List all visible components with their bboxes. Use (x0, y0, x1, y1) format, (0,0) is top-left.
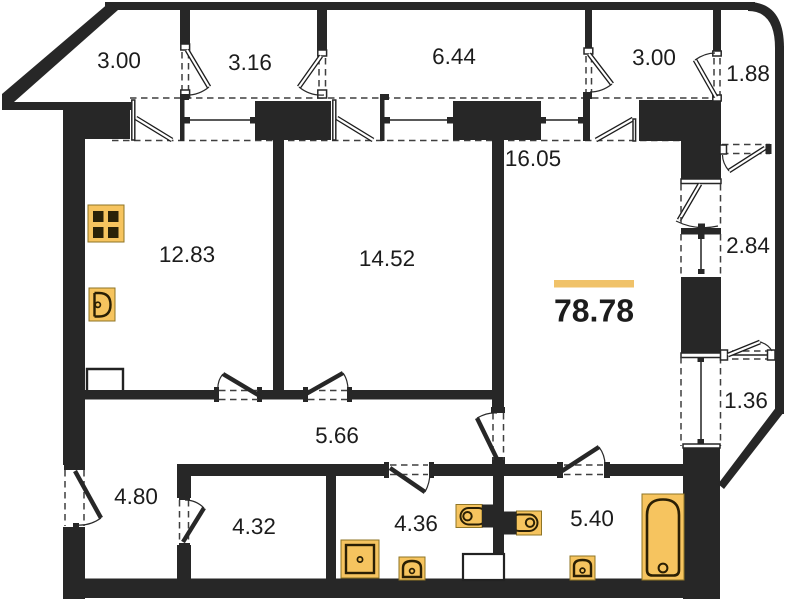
svg-text:1.88: 1.88 (726, 61, 770, 86)
svg-text:1.36: 1.36 (724, 388, 768, 413)
svg-text:4.80: 4.80 (114, 484, 158, 509)
svg-text:78.78: 78.78 (554, 293, 634, 329)
svg-text:3.00: 3.00 (97, 48, 141, 73)
svg-text:4.32: 4.32 (232, 514, 276, 539)
svg-text:3.00: 3.00 (632, 45, 676, 70)
svg-text:16.05: 16.05 (505, 146, 561, 171)
svg-text:2.84: 2.84 (726, 233, 770, 258)
svg-text:3.16: 3.16 (228, 50, 272, 75)
svg-text:12.83: 12.83 (159, 242, 215, 267)
svg-text:5.40: 5.40 (570, 506, 614, 531)
svg-text:5.66: 5.66 (315, 423, 359, 448)
svg-text:4.36: 4.36 (394, 511, 438, 536)
svg-text:14.52: 14.52 (359, 246, 415, 271)
svg-text:6.44: 6.44 (432, 44, 476, 69)
